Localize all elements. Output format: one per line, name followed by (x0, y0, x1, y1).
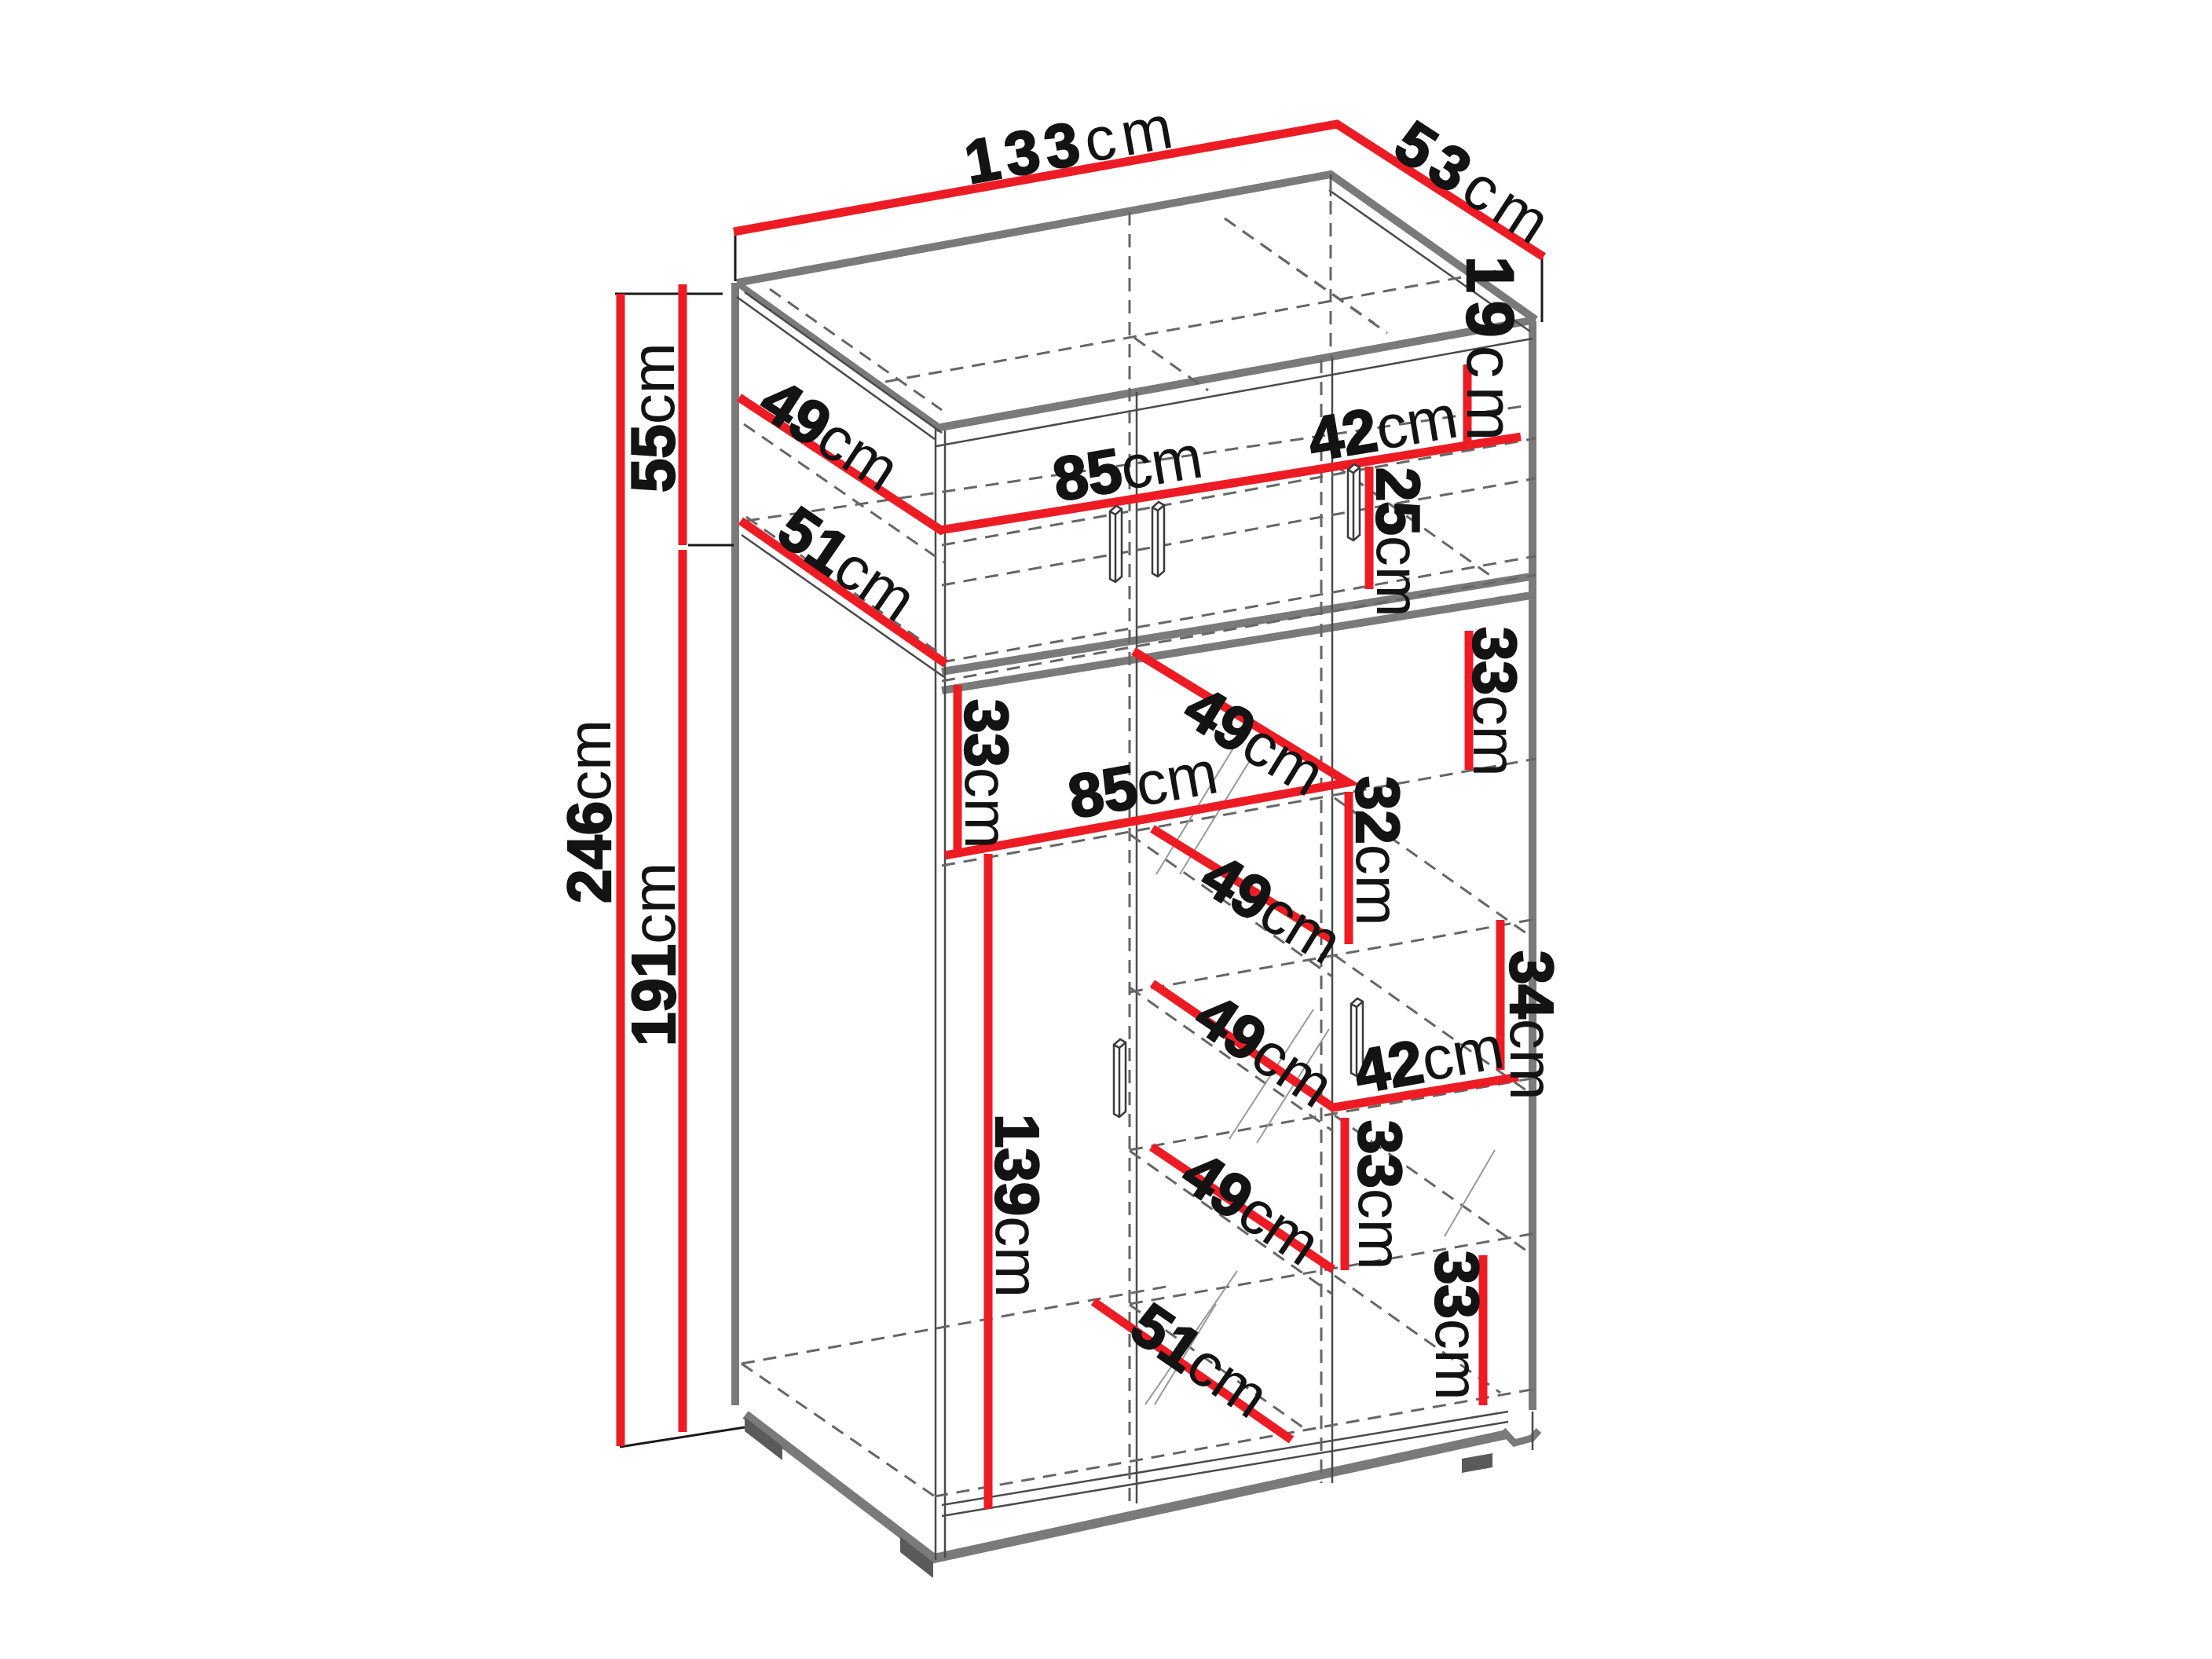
svg-text:33cm: 33cm (1346, 1120, 1415, 1270)
svg-text:55cm: 55cm (618, 342, 687, 493)
svg-text:191cm: 191cm (619, 862, 688, 1046)
svg-text:33cm: 33cm (1460, 627, 1529, 777)
svg-text:139cm: 139cm (983, 1114, 1052, 1298)
svg-text:32cm: 32cm (1343, 776, 1412, 926)
svg-text:246cm: 246cm (555, 720, 624, 903)
svg-text:19cm: 19cm (1453, 256, 1527, 449)
svg-text:33cm: 33cm (952, 699, 1021, 849)
svg-text:25cm: 25cm (1364, 467, 1433, 617)
svg-text:33cm: 33cm (1423, 1251, 1492, 1401)
